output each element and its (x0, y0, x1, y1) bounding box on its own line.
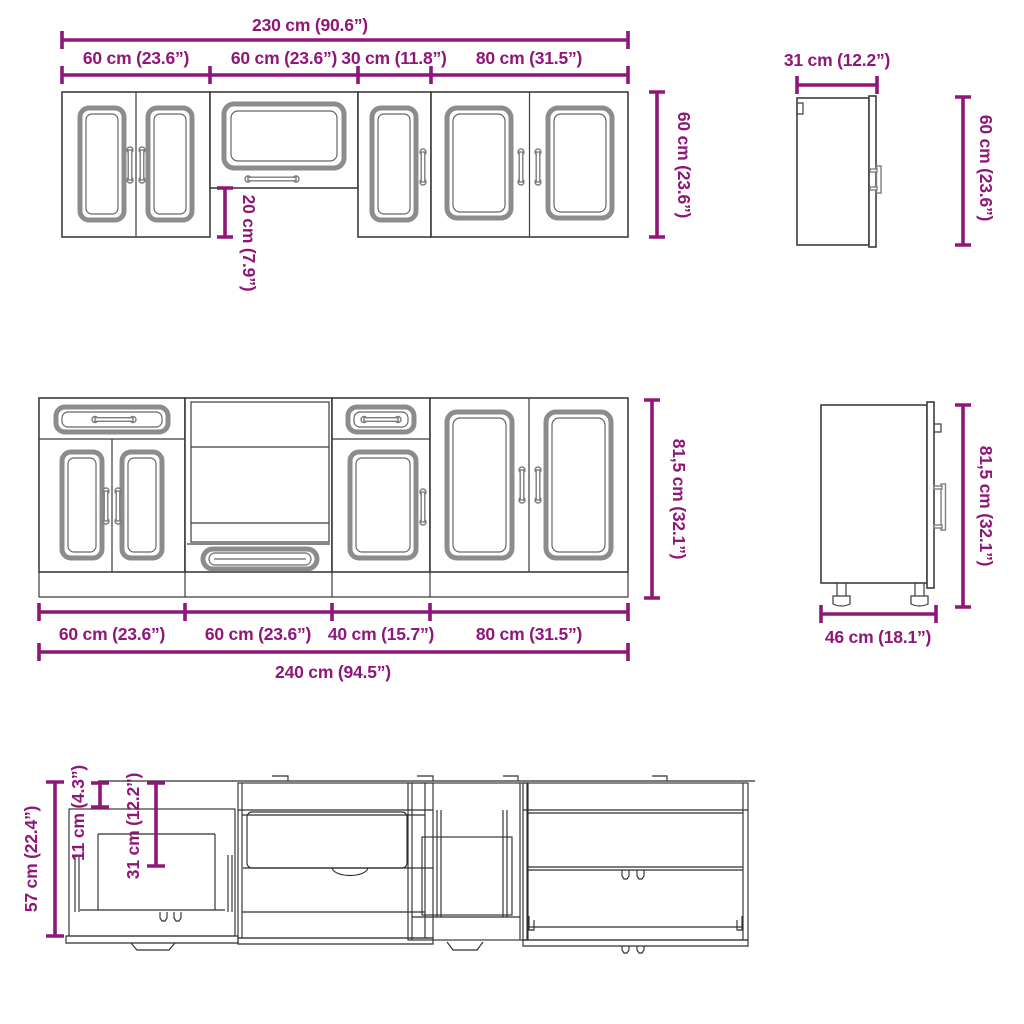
dim-base-height: 81,5 cm (32.1”) (644, 400, 689, 598)
base-cabinet-side-view: 46 cm (18.1”) 81,5 cm (32.1”) (821, 402, 996, 647)
dim-wall-segments: 60 cm (23.6”) 60 cm (23.6”) 30 cm (11.8”… (62, 48, 628, 84)
worktop-bracket (934, 424, 941, 432)
wireframe-unit-c (408, 783, 527, 950)
base-oven-cabinet-60 (185, 398, 332, 572)
wireframe-unit-d (523, 783, 748, 953)
door-handle (103, 488, 109, 524)
plinth (39, 572, 628, 597)
dim-label-base-total: 240 cm (94.5”) (275, 662, 391, 682)
dim-wall-total-width: 230 cm (90.6”) (62, 15, 628, 49)
dim-label-wall-height: 60 cm (23.6”) (674, 112, 694, 218)
drawer-handle (92, 417, 136, 423)
dim-label-wall-seg-3: 30 cm (11.8”) (341, 48, 446, 68)
dim-label-wall-seg-2: 60 cm (23.6”) (231, 48, 337, 68)
door-handle (139, 147, 145, 183)
dim-label-base-height: 81,5 cm (32.1”) (669, 439, 689, 560)
dim-base-total-width: 240 cm (94.5”) (39, 643, 628, 682)
dim-label-wall-seg-4: 80 cm (31.5”) (476, 48, 582, 68)
dim-base-side-height: 81,5 cm (32.1”) (955, 405, 996, 607)
dim-label-base-side-height: 81,5 cm (32.1”) (976, 446, 996, 567)
door-handle (127, 147, 133, 183)
wall-cabinet-80-double-door (431, 92, 628, 237)
dim-label-wall-side-height: 60 cm (23.6”) (976, 115, 996, 221)
dim-label-base-seg-4: 80 cm (31.5”) (476, 624, 582, 644)
wireframe-unit-b (238, 783, 433, 944)
door-handle (115, 488, 121, 524)
dim-label-base-depth: 46 cm (18.1”) (825, 627, 931, 647)
dim-drawer-opening-height: 31 cm (12.2”) (123, 773, 165, 879)
adjustable-foot (911, 583, 928, 606)
dim-label-base-seg-3: 40 cm (15.7”) (328, 624, 434, 644)
dim-wall-side-height: 60 cm (23.6”) (955, 97, 996, 245)
wall-cabinet-60-double-door (62, 92, 210, 237)
dim-drawer-front-height: 11 cm (4.3”) (68, 765, 109, 861)
dim-label-wall-depth: 31 cm (12.2”) (784, 50, 890, 70)
dim-base-depth: 46 cm (18.1”) (821, 605, 936, 647)
wall-cabinet-30-single-door (358, 92, 431, 237)
flap-handle (245, 176, 299, 182)
dim-wall-depth: 31 cm (12.2”) (784, 50, 890, 94)
side-handle (934, 484, 946, 530)
base-cabinet-40-drawer-door (332, 398, 430, 572)
base-cabinet-80-double-door (430, 398, 628, 572)
door-handle (518, 149, 524, 185)
door-handle (535, 149, 541, 185)
dim-label-base-seg-1: 60 cm (23.6”) (59, 624, 165, 644)
door-handle (519, 467, 525, 503)
door-handle (420, 149, 426, 185)
base-cabinet-60-drawer-doors (39, 398, 185, 572)
wall-cabinet-side-view: 31 cm (12.2”) 60 cm (23.6”) (784, 50, 996, 247)
adjustable-foot (833, 583, 850, 606)
dim-hood-offset: 20 cm (7.9”) (217, 188, 259, 291)
door-handle (535, 467, 541, 503)
kitchen-cabinet-dimension-diagram: 230 cm (90.6”) 60 cm (23.6”) 60 cm (23.6… (0, 0, 1024, 1024)
dim-label-base-seg-2: 60 cm (23.6”) (205, 624, 311, 644)
drawer-handle (361, 417, 401, 423)
base-cabinets-front-view: 81,5 cm (32.1”) 60 cm (23.6”) 60 cm (23.… (39, 398, 689, 682)
drawer-detail-wireframe: 57 cm (22.4”) 11 cm (4.3”) 31 cm (12.2”) (21, 765, 755, 953)
dim-wall-height: 60 cm (23.6”) (649, 92, 694, 237)
wall-hood-cabinet-60 (210, 92, 358, 188)
wall-cabinets-front-view: 230 cm (90.6”) 60 cm (23.6”) 60 cm (23.6… (62, 15, 694, 291)
dim-base-segments: 60 cm (23.6”) 60 cm (23.6”) 40 cm (15.7”… (39, 603, 628, 644)
dim-label-wall-total: 230 cm (90.6”) (252, 15, 368, 35)
wireframe-unit-a (66, 809, 238, 950)
dim-label-drawer-front-height: 11 cm (4.3”) (68, 765, 88, 861)
dim-label-wall-seg-1: 60 cm (23.6”) (83, 48, 189, 68)
door-front-edge (927, 402, 934, 588)
dim-label-hood-offset: 20 cm (7.9”) (239, 195, 259, 292)
dim-label-drawer-cabinet-height: 57 cm (22.4”) (21, 806, 41, 912)
dim-label-drawer-opening-height: 31 cm (12.2”) (123, 773, 143, 879)
door-handle (420, 489, 426, 525)
dim-drawer-cabinet-height: 57 cm (22.4”) (21, 782, 64, 936)
